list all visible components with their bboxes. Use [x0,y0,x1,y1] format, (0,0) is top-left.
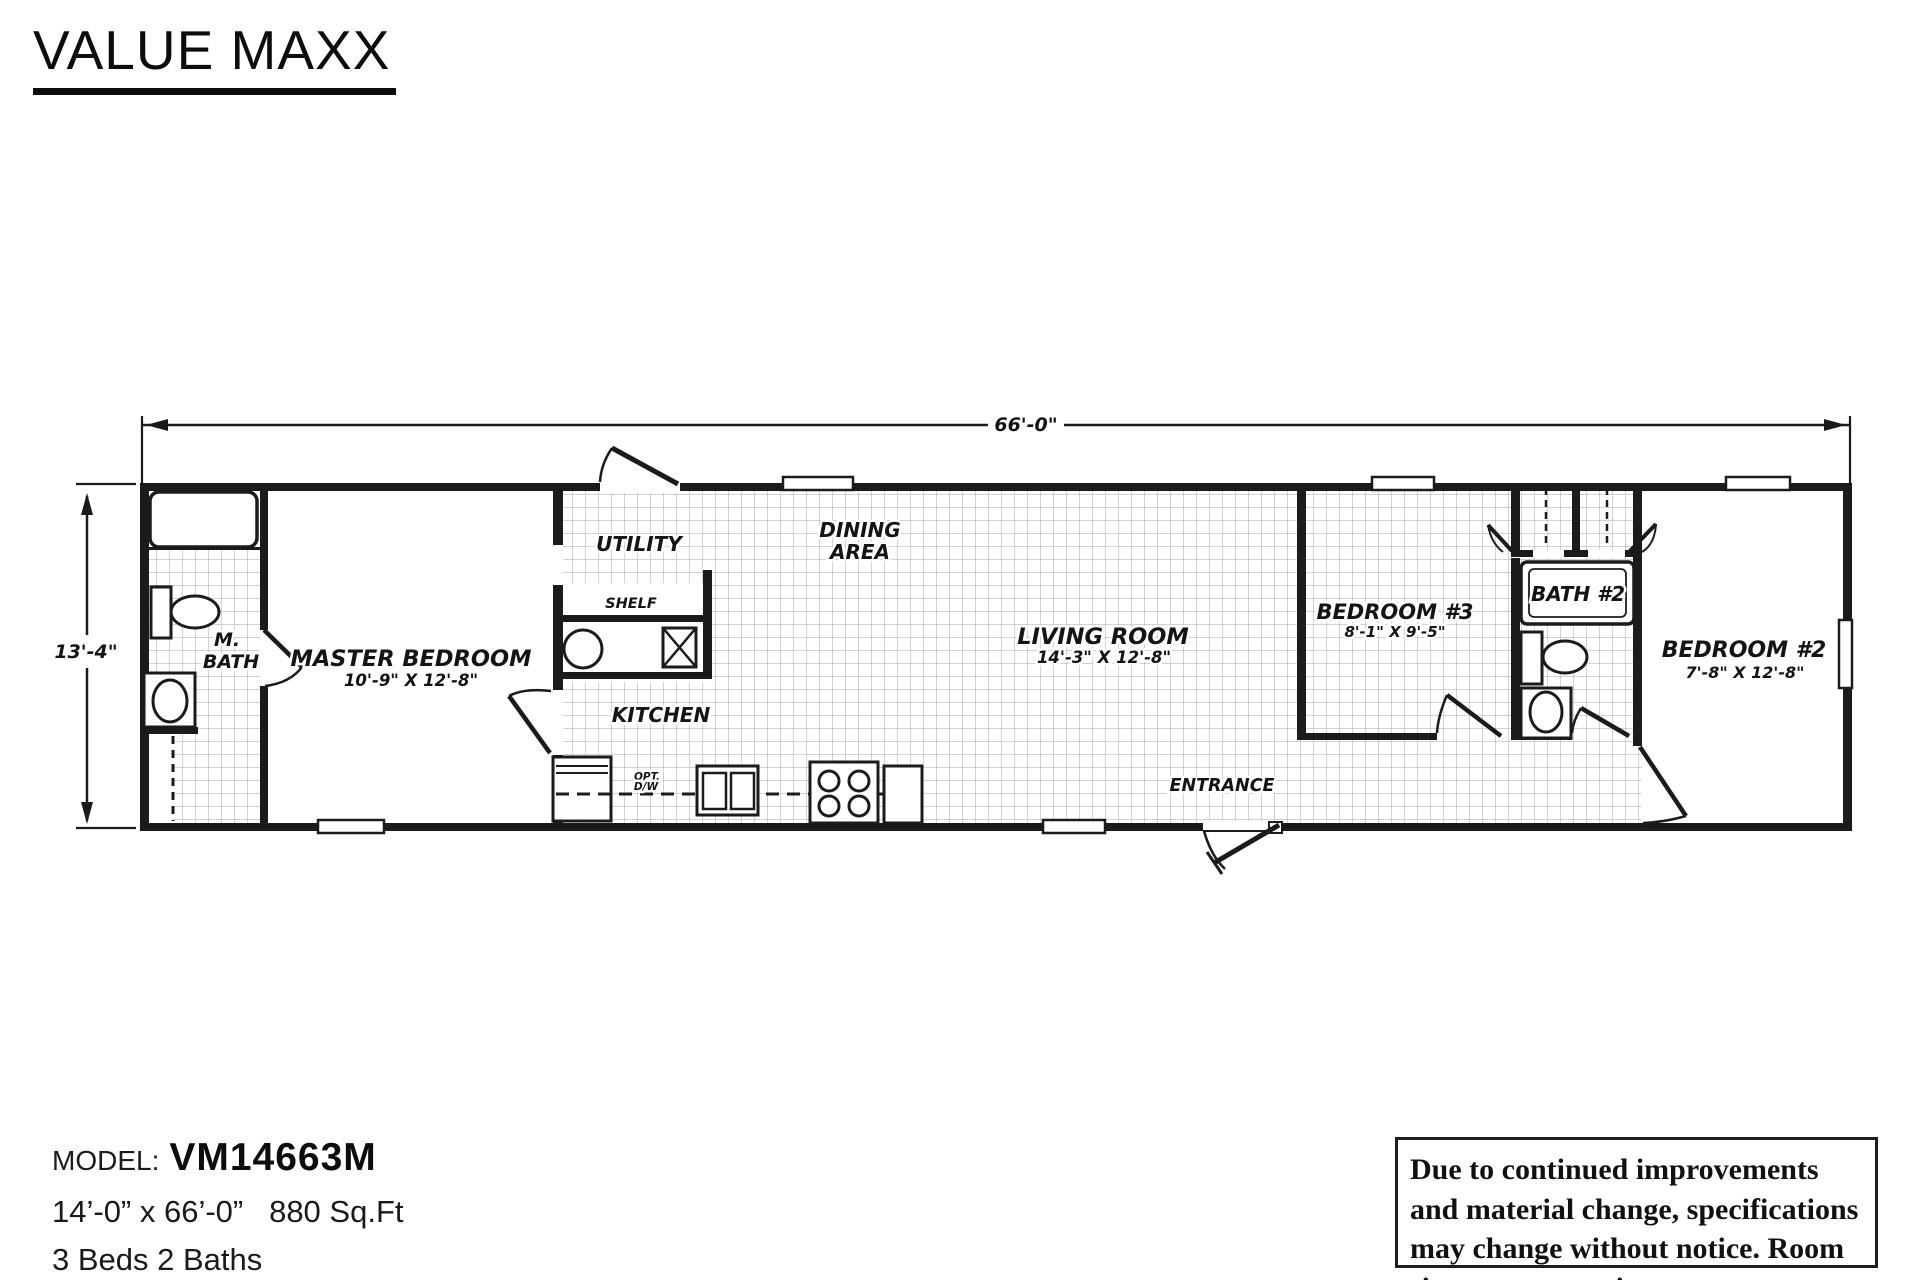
wall-closet-bottom-a [1511,550,1533,557]
shelf-label: SHELF [605,596,657,612]
wall-exterior-left [140,483,149,831]
optdw-label-2: D/W [634,781,659,793]
wall-closet-divider [1572,483,1580,557]
living-room-label: LIVING ROOM [1017,624,1189,650]
model-line: MODEL: VM14663M [52,1136,404,1180]
window-bedroom2-right [1839,620,1852,688]
dryer [663,628,696,667]
bedroom3-label: BEDROOM #3 [1316,600,1473,624]
mbath-toilet-bowl [153,680,187,722]
beds-baths: 3 Beds 2 Baths [52,1242,404,1278]
bath2-toilet-bowl [1530,692,1562,732]
wall-mbath-right-upper [260,483,268,630]
kitchen-label: KITCHEN [612,703,711,727]
utility-door-opening [600,481,680,493]
living-room-size: 14'-3" X 12'-8" [1037,648,1171,667]
hall-floor [1297,732,1642,823]
wall-shelf-bottom [563,615,705,622]
dining-label-1: DINING [819,518,900,542]
wall-bedroom3-bottom [1297,733,1437,740]
model-label: MODEL: [52,1145,159,1177]
bath2-sink-counter [1521,632,1542,684]
model-dimensions: 14’-0” x 66’-0” 880 Sq.Ft [52,1194,404,1230]
stove [810,762,878,823]
kitchen-cabinet [884,766,922,823]
window-living [1043,820,1105,833]
mbath-sink-counter [151,587,171,638]
dim-height-label: 13'-4" [54,641,117,663]
wall-closet-left [1511,483,1520,557]
utility-door [600,448,678,484]
master-bedroom-size: 10'-9" X 12'-8" [344,671,478,690]
model-number: VM14663M [169,1136,376,1180]
wall-exterior-top [140,483,1852,491]
wall-master-utility-upper [553,483,563,545]
utility-label: UTILITY [596,532,684,556]
mbath-label-2: BATH [203,651,259,673]
floor-plan-sheet: VALUE MAXX [0,0,1920,1280]
master-bedroom-label: MASTER BEDROOM [290,646,531,672]
bedroom3-size: 8'-1" X 9'-5" [1344,623,1445,641]
mbath-label-1: M. [214,629,240,651]
window-dining [783,477,853,490]
wall-laundry-bottom [556,672,712,679]
mbath-closet-floor [147,732,173,823]
wall-bedroom3-left [1297,483,1306,740]
disclaimer-box: Due to continued improvements and materi… [1395,1137,1878,1268]
bath2-label: BATH #2 [1531,582,1625,606]
wall-closet-bottom-b [1564,550,1588,557]
kitchen-sink [697,766,758,815]
dining-label-2: AREA [828,540,890,564]
model-info: MODEL: VM14663M 14’-0” x 66’-0” 880 Sq.F… [52,1136,404,1278]
wall-bath2-left [1511,558,1520,740]
master-kitchen-door [509,690,551,753]
dim-width-label: 66'-0" [994,414,1057,436]
washer [564,630,602,668]
wall-laundry-right [703,570,712,679]
entrance-label: ENTRANCE [1170,776,1275,796]
mbath-bathtub [150,492,257,547]
wall-exterior-bottom [140,823,1852,831]
window-master [318,820,384,833]
bath2-sink [1543,641,1587,673]
window-bedroom3 [1372,477,1434,490]
wall-mbath-right-lower [260,686,268,831]
window-bedroom2-top [1726,477,1790,490]
refrigerator [553,757,611,821]
floor-plan-drawing: 66'-0" 13'-4" M. BATH MASTER BEDROOM 10'… [0,0,1920,1280]
wall-closet-bottom-c [1625,550,1642,557]
bedroom2-door [1640,747,1686,823]
bedroom2-label: BEDROOM #2 [1662,638,1827,663]
closet-left-floor [1520,488,1575,550]
bedroom2-size: 7'-8" X 12'-8" [1686,663,1805,682]
mbath-sink [171,596,219,628]
